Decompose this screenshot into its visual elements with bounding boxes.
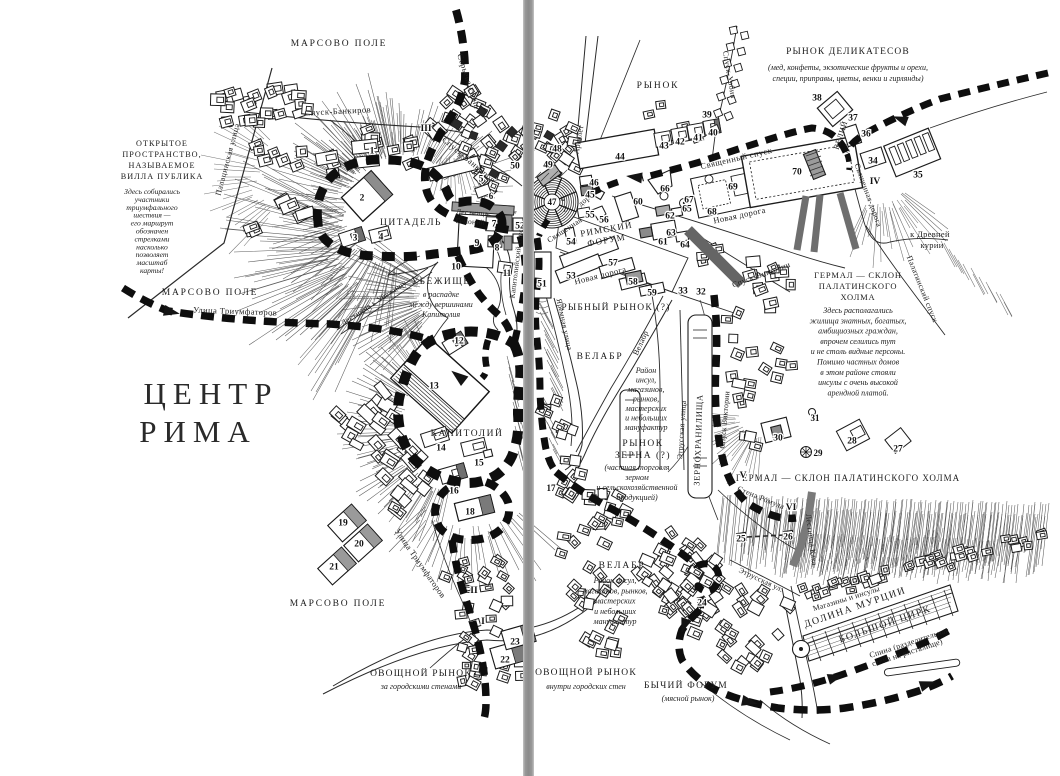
svg-text:ВЕЛАБР: ВЕЛАБР — [599, 561, 646, 571]
svg-text:РЫНОК: РЫНОК — [622, 439, 663, 449]
svg-text:19: 19 — [338, 518, 348, 528]
svg-text:58: 58 — [628, 277, 638, 287]
svg-text:ЗЕРНА (?): ЗЕРНА (?) — [615, 450, 671, 461]
svg-text:b: b — [564, 205, 568, 214]
svg-text:27: 27 — [893, 444, 903, 454]
svg-text:70: 70 — [792, 167, 802, 177]
svg-text:инсулы с очень высокой: инсулы с очень высокой — [818, 378, 898, 387]
svg-text:30: 30 — [773, 433, 783, 443]
svg-text:Район: Район — [635, 366, 657, 375]
svg-text:III: III — [420, 124, 431, 134]
svg-text:ГЕРМАЛ — СКЛОН ПАЛАТИНСКОГО ХО: ГЕРМАЛ — СКЛОН ПАЛАТИНСКОГО ХОЛМА — [736, 473, 960, 483]
svg-text:магазинов, рынков,: магазинов, рынков, — [581, 586, 647, 595]
svg-text:28: 28 — [847, 436, 857, 446]
svg-text:рынков,: рынков, — [632, 395, 659, 404]
svg-text:амбициозных граждан,: амбициозных граждан, — [818, 327, 898, 336]
svg-text:I: I — [481, 617, 485, 627]
svg-text:36: 36 — [861, 129, 871, 139]
svg-text:V: V — [740, 471, 747, 481]
svg-text:44: 44 — [615, 152, 625, 162]
svg-text:продукцией): продукцией) — [616, 493, 658, 502]
svg-text:ХОЛМА: ХОЛМА — [841, 292, 876, 302]
svg-text:к Древней: к Древней — [910, 229, 950, 239]
svg-text:33: 33 — [678, 286, 688, 296]
svg-text:59: 59 — [647, 288, 657, 298]
svg-text:специи, приправы, цветы, венки: специи, приправы, цветы, венки и гирлянд… — [773, 74, 924, 83]
svg-text:40: 40 — [708, 128, 718, 138]
svg-text:8: 8 — [495, 243, 500, 253]
svg-text:10: 10 — [451, 262, 461, 272]
svg-text:Район инсул,: Район инсул, — [593, 576, 637, 585]
svg-text:9: 9 — [475, 238, 480, 249]
svg-text:6: 6 — [489, 191, 494, 201]
svg-text:55: 55 — [585, 210, 595, 220]
svg-text:БЫЧИЙ ФОРУМ: БЫЧИЙ ФОРУМ — [644, 679, 728, 691]
svg-text:зерном: зерном — [624, 473, 648, 482]
svg-text:VI: VI — [786, 503, 797, 513]
svg-text:инсул,: инсул, — [636, 376, 656, 385]
svg-text:68: 68 — [707, 207, 717, 217]
svg-text:38: 38 — [812, 93, 822, 103]
svg-text:мануфактур: мануфактур — [624, 423, 668, 432]
svg-text:35: 35 — [913, 170, 923, 180]
svg-text:26: 26 — [783, 532, 793, 542]
svg-text:в распадке: в распадке — [423, 290, 460, 299]
svg-text:и сельскохозяйственной: и сельскохозяйственной — [596, 483, 677, 492]
svg-text:ГЕРМАЛ — СКЛОН: ГЕРМАЛ — СКЛОН — [814, 270, 902, 280]
svg-text:МАРСОВО ПОЛЕ: МАРСОВО ПОЛЕ — [162, 288, 259, 298]
svg-text:20: 20 — [354, 539, 364, 549]
svg-text:(мед, конфеты, экзотические фр: (мед, конфеты, экзотические фрукты и оре… — [768, 63, 928, 72]
svg-text:37: 37 — [848, 113, 858, 123]
svg-text:II: II — [470, 586, 478, 596]
svg-text:69: 69 — [728, 182, 738, 192]
svg-text:57: 57 — [608, 258, 618, 268]
svg-text:45: 45 — [585, 190, 595, 200]
svg-text:a: a — [561, 194, 565, 203]
svg-text:арендной платой.: арендной платой. — [828, 388, 889, 397]
svg-text:РЫНОК ДЕЛИКАТЕСОВ: РЫНОК ДЕЛИКАТЕСОВ — [786, 47, 910, 57]
svg-text:25: 25 — [736, 534, 746, 544]
svg-text:(мясной рынок): (мясной рынок) — [662, 694, 715, 703]
svg-text:и небольших: и небольших — [594, 607, 636, 616]
svg-text:впрочем селились тут: впрочем селились тут — [820, 337, 896, 346]
svg-text:15: 15 — [474, 458, 484, 468]
svg-text:7: 7 — [492, 219, 497, 229]
svg-text:65: 65 — [682, 204, 692, 214]
svg-text:5: 5 — [479, 174, 484, 184]
svg-text:магазинов,: магазинов, — [627, 385, 665, 394]
svg-text:23: 23 — [510, 637, 520, 647]
svg-text:МАРСОВО ПОЛЕ: МАРСОВО ПОЛЕ — [291, 39, 388, 49]
svg-text:64: 64 — [680, 240, 690, 250]
svg-text:14: 14 — [436, 443, 446, 453]
svg-text:16: 16 — [449, 486, 459, 496]
svg-text:ОВОЩНОЙ РЫНОК: ОВОЩНОЙ РЫНОК — [370, 667, 472, 679]
svg-text:внутри городских стен: внутри городских стен — [546, 682, 626, 691]
svg-text:IV: IV — [870, 177, 881, 187]
svg-text:53: 53 — [566, 271, 576, 281]
svg-text:и небольших: и небольших — [625, 414, 667, 423]
svg-text:ВИЛЛА ПУБЛИКА: ВИЛЛА ПУБЛИКА — [121, 172, 204, 181]
svg-text:(частная торговля: (частная торговля — [604, 463, 669, 472]
svg-text:67: 67 — [684, 195, 694, 205]
svg-text:ОВОЩНОЙ РЫНОК: ОВОЩНОЙ РЫНОК — [535, 666, 637, 678]
svg-text:ПАЛАТИНСКОГО: ПАЛАТИНСКОГО — [819, 281, 898, 291]
svg-text:32: 32 — [696, 287, 706, 297]
svg-text:РИМА: РИМА — [139, 414, 257, 449]
svg-text:61: 61 — [658, 237, 668, 247]
svg-text:34: 34 — [868, 156, 878, 166]
svg-text:3: 3 — [353, 233, 358, 243]
svg-text:47: 47 — [548, 197, 558, 207]
svg-text:1: 1 — [370, 146, 375, 156]
svg-text:11: 11 — [503, 268, 512, 278]
svg-text:ОТКРЫТОЕ: ОТКРЫТОЕ — [136, 139, 188, 148]
svg-text:29: 29 — [814, 448, 824, 458]
svg-text:22: 22 — [500, 655, 510, 665]
svg-text:в этом районе стояли: в этом районе стояли — [820, 368, 895, 377]
svg-text:мастерских: мастерских — [625, 404, 667, 413]
svg-text:карты!: карты! — [140, 266, 164, 275]
svg-text:МАРСОВО ПОЛЕ: МАРСОВО ПОЛЕ — [290, 599, 387, 609]
svg-text:и не столь видные персоны.: и не столь видные персоны. — [811, 347, 906, 356]
svg-text:4: 4 — [379, 232, 384, 242]
svg-text:42: 42 — [675, 137, 685, 147]
svg-text:между вершинами: между вершинами — [408, 300, 473, 309]
svg-text:мануфактур: мануфактур — [593, 617, 637, 626]
svg-text:21: 21 — [329, 562, 339, 572]
svg-text:НАЗЫВАЕМОЕ: НАЗЫВАЕМОЕ — [129, 161, 196, 170]
svg-text:13: 13 — [429, 381, 439, 391]
svg-text:50: 50 — [510, 161, 520, 171]
svg-text:Здесь располагались: Здесь располагались — [823, 306, 893, 315]
svg-text:49: 49 — [543, 160, 553, 170]
svg-text:Капитолия: Капитолия — [421, 310, 460, 319]
svg-text:ЦЕНТР: ЦЕНТР — [144, 376, 279, 411]
svg-text:ВЕЛАБР: ВЕЛАБР — [577, 352, 624, 362]
svg-text:48: 48 — [552, 144, 562, 154]
svg-text:39: 39 — [702, 110, 712, 120]
svg-text:46: 46 — [589, 178, 599, 188]
svg-text:24: 24 — [697, 598, 707, 608]
svg-text:ПРОСТРАНСТВО,: ПРОСТРАНСТВО, — [122, 150, 201, 159]
svg-text:2: 2 — [360, 193, 365, 203]
svg-text:курии: курии — [920, 240, 943, 250]
svg-text:за городскими стенами: за городскими стенами — [380, 682, 462, 691]
svg-text:18: 18 — [465, 507, 475, 517]
svg-text:РЫНОК: РЫНОК — [637, 81, 680, 91]
svg-text:РЫБНЫЙ РЫНОК (?): РЫБНЫЙ РЫНОК (?) — [561, 301, 670, 313]
svg-text:мастерских: мастерских — [594, 597, 636, 606]
svg-text:62: 62 — [665, 211, 675, 221]
svg-text:66: 66 — [660, 184, 670, 194]
svg-text:63: 63 — [666, 228, 676, 238]
svg-text:31: 31 — [811, 413, 821, 423]
svg-text:Помимо частных домов: Помимо частных домов — [816, 358, 900, 367]
svg-text:43: 43 — [659, 141, 669, 151]
svg-text:60: 60 — [633, 197, 643, 207]
svg-text:56: 56 — [599, 215, 609, 225]
svg-text:12: 12 — [454, 336, 464, 346]
svg-text:51: 51 — [537, 279, 547, 289]
svg-text:17: 17 — [547, 483, 557, 493]
svg-text:УБЕЖИЩЕ: УБЕЖИЩЕ — [411, 277, 470, 287]
svg-text:41: 41 — [693, 133, 703, 143]
svg-text:жилища знатных, богатых,: жилища знатных, богатых, — [810, 316, 907, 325]
svg-text:КАПИТОЛИЙ: КАПИТОЛИЙ — [431, 427, 504, 439]
svg-text:54: 54 — [566, 237, 576, 247]
svg-text:ЦИТАДЕЛЬ: ЦИТАДЕЛЬ — [380, 218, 442, 228]
